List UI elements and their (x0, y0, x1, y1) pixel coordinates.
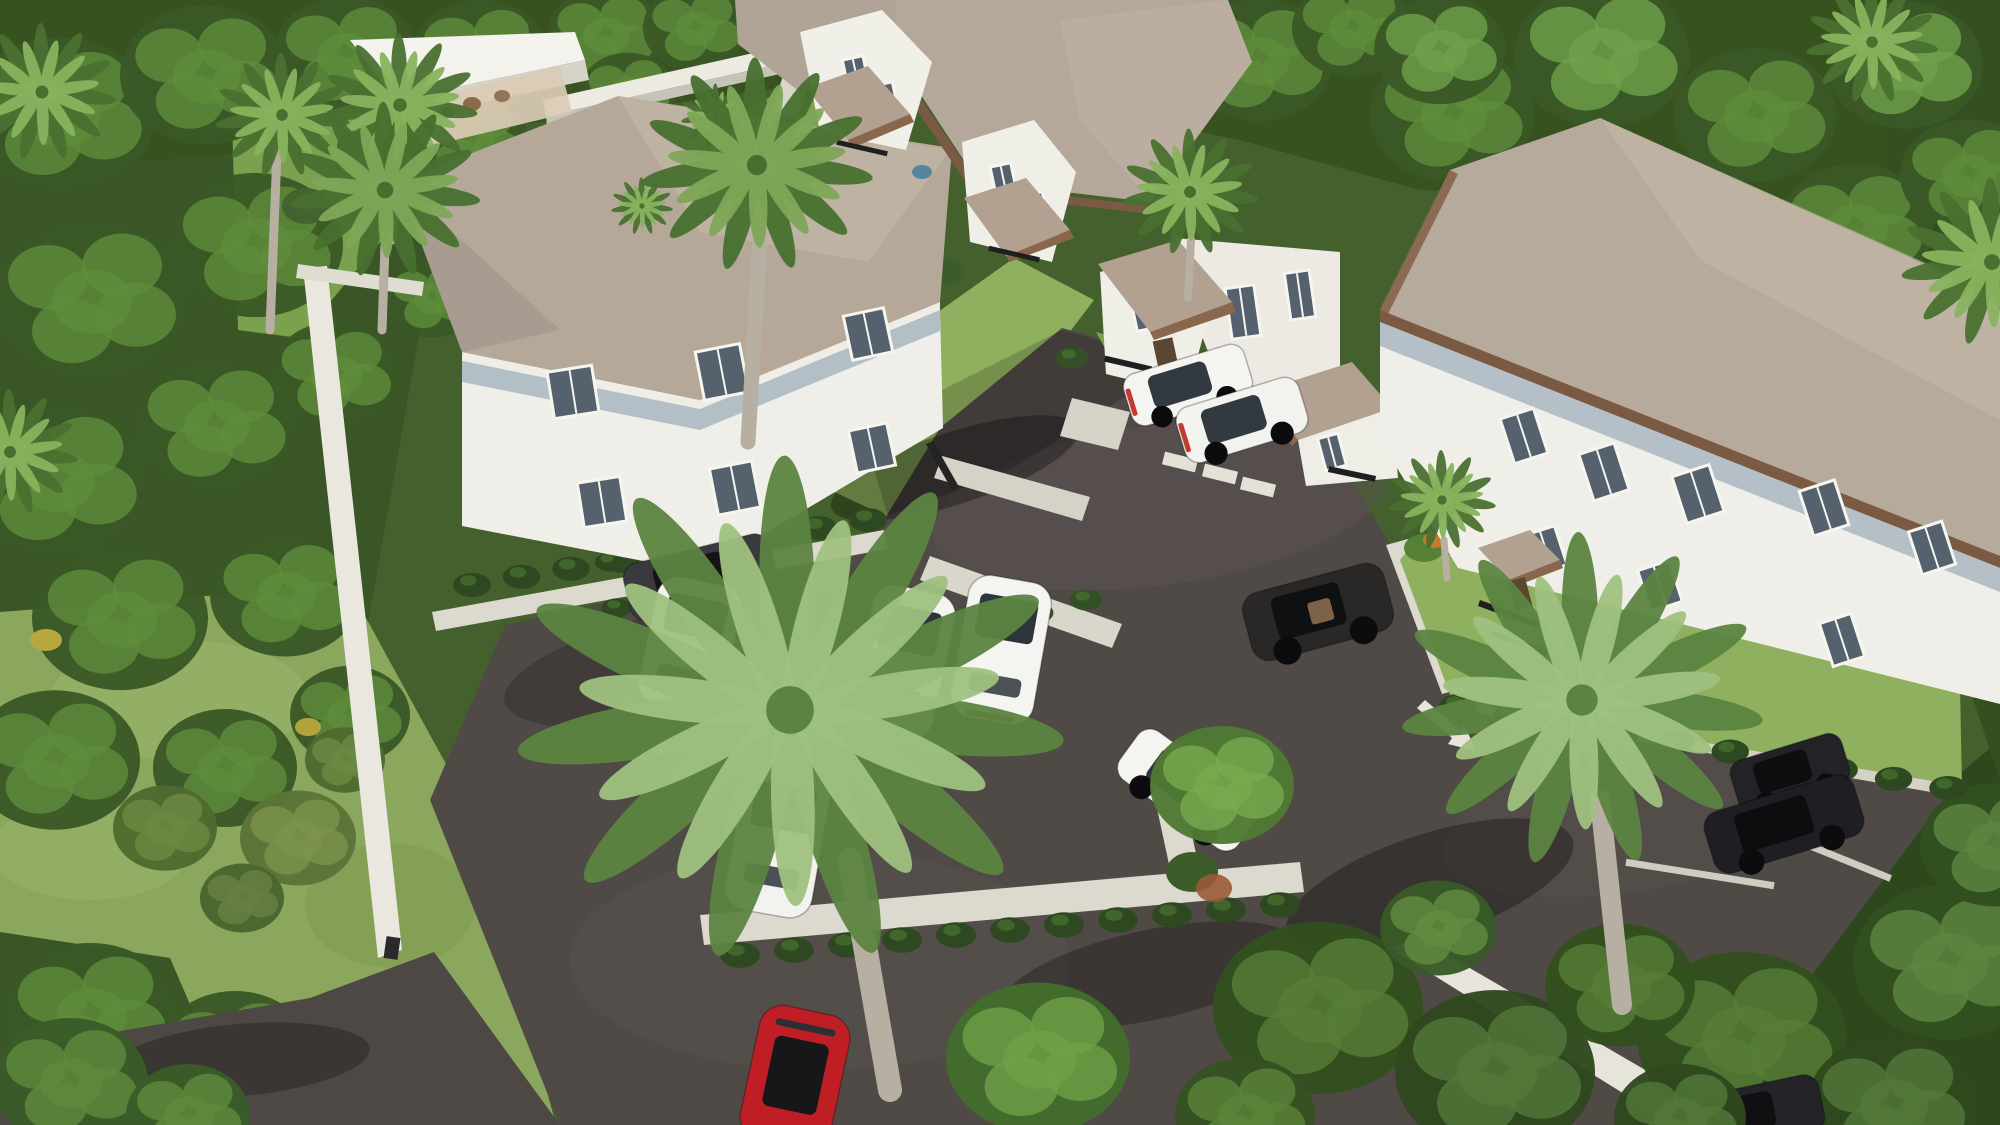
window (708, 459, 763, 517)
aerial-render-canvas (0, 0, 2000, 1125)
cabana-furniture (494, 90, 510, 102)
window (576, 475, 629, 530)
tree (1374, 0, 1506, 104)
yellow-flowers (295, 718, 321, 736)
tree (32, 546, 208, 690)
tree (1150, 726, 1294, 844)
bush (1380, 880, 1496, 975)
scene-root (0, 0, 2000, 1125)
balcony-chairs (912, 165, 932, 179)
bush (200, 864, 284, 933)
yellow-flowers (30, 629, 62, 651)
window (693, 342, 750, 402)
bush (113, 785, 217, 870)
window (545, 364, 600, 421)
island-bush-rust (1196, 874, 1232, 902)
aerial-render-townhomes (0, 0, 2000, 1125)
